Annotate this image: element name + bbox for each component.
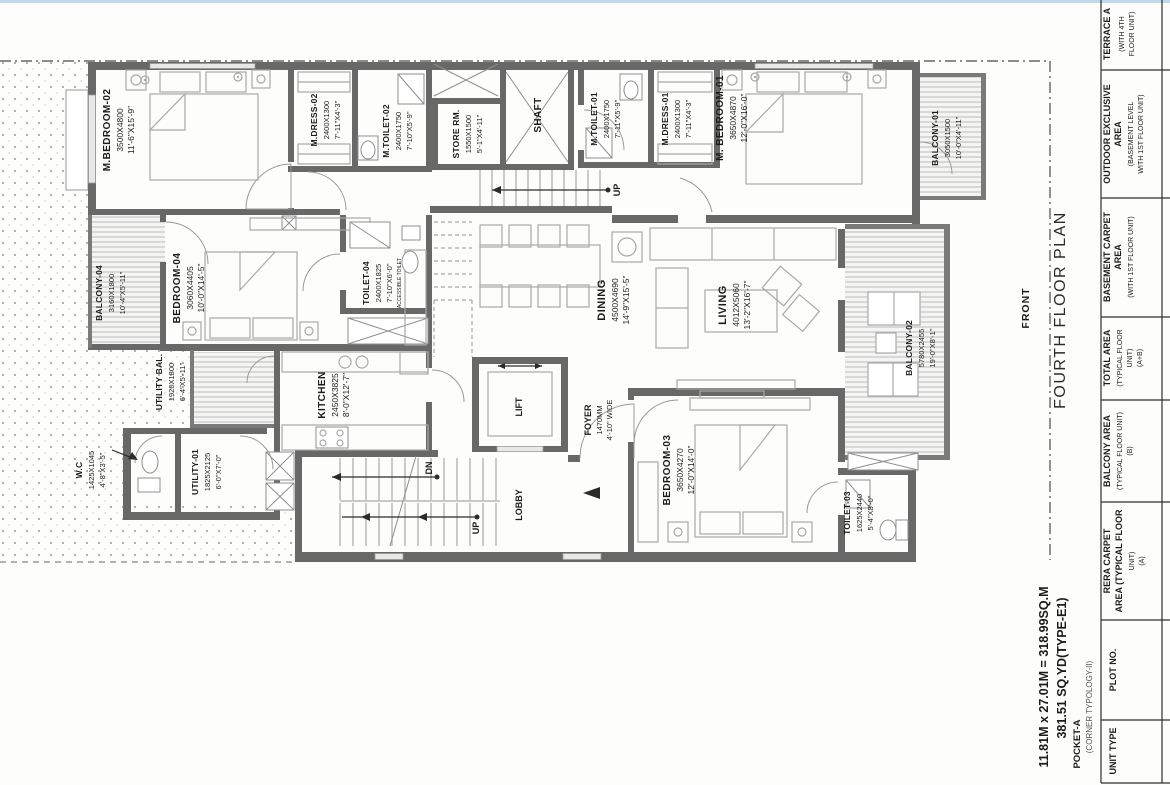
table-cell-text: AREA (1113, 121, 1123, 147)
table-row-balcony-area: BALCONY AREA (TYPICAL FLOOR UNIT) (B) (1102, 412, 1134, 490)
room-dim-mm-kitchen: 2450X3825 (330, 373, 340, 417)
room-label-m-dress-01: M.DRESS-01 (660, 92, 670, 145)
table-cell-text: BASEMENT CARPET (1102, 212, 1112, 303)
room-dim-ft-store-rm: 5'-1"X4'-11" (475, 114, 484, 153)
area-table: TERRACE A (WITH 4TH FLOOR UNIT) OUTDOOR … (1101, 0, 1170, 783)
room-dim-mm-m-dress-01: 2400X1300 (673, 100, 682, 138)
room-label-balcony-01: BALCONY-01 (930, 110, 940, 166)
room-dim-ft-toilet-04: 7'-10"X6'-0" (385, 263, 394, 302)
table-cell-text: BALCONY AREA (1102, 415, 1112, 488)
room-label-m-dress-02: M.DRESS-02 (309, 93, 319, 146)
table-cell-text: PLOT NO. (1108, 649, 1118, 692)
room-label-utility-bal: UTILITY BAL. (154, 354, 164, 411)
room-note-accessible-toilet: ACCESSIBLE TOILET (397, 258, 403, 308)
table-cell-text: (A+B) (1137, 349, 1144, 367)
sheet-title: FOURTH FLOOR PLAN (1052, 211, 1069, 409)
room-label-store-rm: STORE RM. (451, 110, 461, 159)
room-dim-ft-dining: 14'-9"X15'-5" (621, 276, 631, 325)
room-dim-mm-wc: 1425X1045 (87, 451, 96, 489)
page-top-strip (0, 0, 1170, 3)
room-dim-mm-toilet-04: 2400X1825 (374, 264, 383, 302)
room-dim-mm-utility-bal: 1920X1800 (167, 363, 176, 401)
room-dim-mm-m-bedroom-02: 3500X4800 (115, 108, 125, 152)
footer-pocket-label: POCKET-A (1072, 719, 1083, 768)
table-cell-text: (BASEMENT LEVEL (1128, 102, 1135, 167)
room-label-m-toilet-02: M.TOILET-02 (381, 104, 391, 158)
room-label-m-toilet-01: M.TOILET-01 (589, 92, 599, 146)
table-row-plot-no: PLOT NO. (1108, 649, 1118, 692)
room-dim-ft-m-bedroom-01: 12'-0"X16'-0" (739, 94, 749, 143)
room-dim-ft-m-toilet-02: 7'-10"X5'-9" (405, 111, 414, 150)
room-dim-ft-m-dress-02: 7'-11"X4'-3" (333, 100, 342, 139)
room-dim-mm-store-rm: 1550X1500 (464, 115, 473, 153)
room-dim-mm-m-bedroom-01: 3650X4870 (728, 96, 738, 140)
room-dim-mm-balcony-04: 3160X1800 (107, 274, 116, 312)
floor-plan-drawing: M.BEDROOM-02 3500X4800 11'-6"X15'-9" M.D… (0, 0, 1170, 785)
room-label-living: LIVING (717, 285, 729, 325)
entry-arrow-icon (583, 487, 600, 499)
walls (88, 62, 920, 562)
room-dim-ft-bedroom-04: 10'-0"X14'-5" (196, 264, 206, 313)
room-dim-mm-balcony-02: 5780X2455 (917, 329, 926, 367)
utility-balcony-deck (192, 352, 274, 428)
table-cell-text: (WITH 4TH (1119, 16, 1126, 51)
room-label-kitchen: KITCHEN (317, 371, 328, 418)
room-dim-ft-toilet-03: 5'-4"X8'-0" (866, 495, 875, 530)
room-label-lobby: LOBBY (514, 489, 524, 521)
room-dim-mm-utility-01: 1825X2125 (203, 453, 212, 491)
room-dim-ft-wc: 4'-8"X3'-5" (98, 452, 107, 487)
room-label-balcony-02: BALCONY-02 (904, 320, 914, 376)
table-cell-text: UNIT TYPE (1108, 727, 1118, 774)
room-dim-mm-toilet-03: 1625X2440 (855, 494, 864, 532)
floor-plan-sheet: M.BEDROOM-02 3500X4800 11'-6"X15'-9" M.D… (0, 0, 1170, 785)
table-cell-text: OUTDOOR EXCLUSIVE (1102, 84, 1112, 184)
furniture (126, 70, 920, 542)
room-dim-mm-bedroom-03: 3650X4270 (675, 448, 685, 492)
room-dim-ft-m-dress-01: 7'-11"X4'-3" (684, 99, 693, 138)
table-cell-text: TERRACE A (1102, 7, 1112, 60)
table-row-rera-carpet: RERA CARPET AREA (TYPICAL FLOOR UNIT) (A… (1102, 509, 1146, 612)
table-row-terrace: TERRACE A (WITH 4TH FLOOR UNIT) (1102, 7, 1136, 60)
ceiling-symbol-icons (141, 73, 851, 84)
room-label-dining: DINING (596, 279, 608, 321)
room-dim-mm-m-toilet-01: 2400X1750 (602, 100, 611, 138)
footer-typology-label: (CORNER TYPOLOGY-II) (1085, 660, 1094, 753)
room-label-bedroom-04: BEDROOM-04 (172, 253, 183, 324)
sheet-annotations: FRONT FOURTH FLOOR PLAN 11.81M x 27.01M … (1020, 211, 1094, 768)
table-cell-text: TOTAL AREA (1102, 329, 1112, 386)
room-dim-ft-living: 13'-2"X16'-7" (742, 281, 752, 330)
room-dim-ft-utility-bal: 6'-4"X5'-11" (178, 362, 187, 401)
room-dim-mm-foyer: 1470MM (595, 405, 604, 434)
room-label-bedroom-03: BEDROOM-03 (662, 435, 673, 506)
table-row-total-area: TOTAL AREA (TYPICAL FLOOR UNIT) (A+B) (1102, 329, 1144, 386)
table-cell-text: AREA (TYPICAL FLOOR (1114, 509, 1124, 612)
room-label-toilet-04: TOILET-04 (361, 261, 371, 305)
room-dim-mm-living: 4012X5060 (731, 283, 741, 327)
upper-staircase (434, 170, 611, 357)
room-label-utility-01: UTILITY-01 (190, 449, 200, 495)
table-cell-text: UNIT) (1129, 552, 1136, 571)
planter-box (66, 90, 88, 190)
room-label-shaft: SHAFT (533, 97, 544, 132)
footer-sqyd-line: 381.51 SQ.YD(TYPE-E1) (1055, 597, 1069, 738)
stairs-dn-label: DN (424, 462, 434, 475)
table-cell-text: FLOOR UNIT) (1129, 12, 1136, 57)
table-row-outdoor-exclusive: OUTDOOR EXCLUSIVE AREA (BASEMENT LEVEL W… (1102, 84, 1145, 184)
front-label: FRONT (1020, 287, 1032, 328)
table-row-basement-carpet: BASEMENT CARPET AREA (WITH 1ST FLOOR UNI… (1102, 212, 1135, 303)
table-row-unit-type: UNIT TYPE (1108, 727, 1118, 774)
bed-master-02 (126, 70, 270, 180)
stairs-up-label-2: UP (471, 522, 481, 535)
room-dim-ft-kitchen: 8'-0"X12'-7" (341, 373, 351, 417)
room-label-m-bedroom-01: M. BEDROOM-01 (715, 75, 726, 161)
table-cell-text: (B) (1127, 446, 1134, 455)
room-dim-ft-m-bedroom-02: 11'-6"X15'-9" (126, 106, 136, 154)
room-label-m-bedroom-02: M.BEDROOM-02 (102, 89, 113, 172)
room-dim-mm-m-dress-02: 2400X1300 (322, 101, 331, 139)
room-label-foyer: FOYER (583, 404, 593, 436)
table-cell-text: AREA (1113, 244, 1123, 270)
table-cell-text: UNIT) (1127, 349, 1134, 368)
room-label-toilet-03: TOILET-03 (842, 491, 852, 535)
table-cell-text: (WITH 1ST FLOOR UNIT) (1128, 216, 1135, 298)
room-label-lift: LIFT (514, 397, 524, 416)
room-dim-ft-balcony-04: 10'-4"X5'-11" (118, 271, 127, 314)
room-dim-ft-bedroom-03: 12'-0"X14'-0" (686, 446, 696, 495)
room-dim-mm-bedroom-04: 3060X4405 (185, 266, 195, 310)
table-cell-text: WITH 1ST FLOOR UNIT) (1138, 94, 1145, 173)
kitchen-counters (282, 352, 428, 450)
room-dim-mm-m-toilet-02: 2400X1750 (394, 112, 403, 150)
room-dim-mm-dining: 4500X4690 (610, 278, 620, 322)
room-dim-ft-utility-01: 6'-0"X7'-0" (214, 454, 223, 489)
room-label-wc: W.C (74, 462, 84, 479)
room-dim-mm-balcony-01: 3050X1500 (943, 119, 952, 157)
table-cell-text: RERA CARPET (1102, 528, 1112, 593)
room-dim-ft-balcony-02: 19'-0"X8'-1" (928, 328, 937, 367)
table-cell-text: (TYPICAL FLOOR (1117, 329, 1124, 386)
room-label-balcony-04: BALCONY-04 (94, 265, 104, 321)
table-cell-text: (A) (1139, 556, 1146, 565)
room-dim-ft-balcony-01: 10'-0"X4'-11" (954, 116, 963, 159)
footer-dimension-line: 11.81M x 27.01M = 318.99SQ.M (1037, 586, 1051, 767)
room-dim-ft-m-toilet-01: 7'-11"X5'-9" (613, 99, 622, 138)
dining-set (480, 225, 600, 307)
balcony-decks (90, 77, 985, 457)
stairs-up-label-1: UP (612, 184, 622, 197)
room-dim-ft-foyer: 4'-10" WIDE (605, 400, 614, 441)
table-cell-text: (TYPICAL FLOOR UNIT) (1117, 412, 1124, 490)
